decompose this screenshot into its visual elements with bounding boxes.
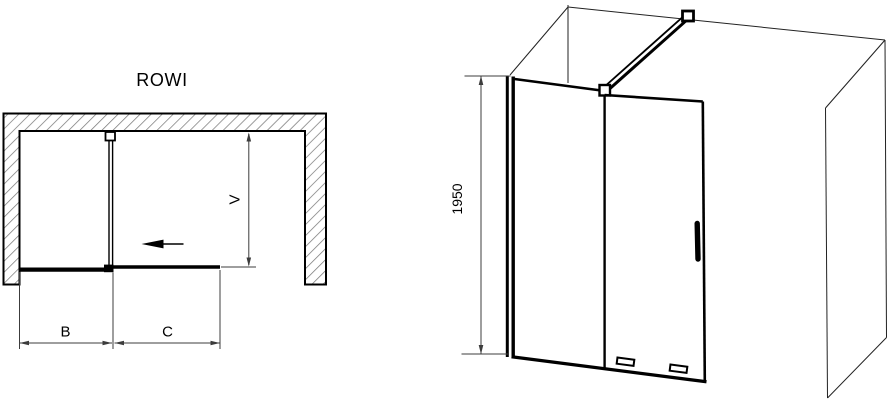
panel-junction-plan (104, 265, 114, 273)
door-top-edge (605, 95, 703, 102)
slide-direction-arrow-icon (142, 240, 184, 249)
bottom-guide-left (617, 358, 635, 366)
door-handle (697, 224, 698, 260)
room-outline (510, 5, 887, 398)
plan-view: ROWI B (4, 70, 327, 349)
support-bar-core (608, 18, 686, 87)
door-right-edge (703, 102, 705, 382)
wall-bracket-plan (106, 132, 116, 141)
right-wall-bottom-edge (828, 338, 887, 399)
wall-profile (507, 76, 513, 358)
bottom-guide-right (670, 365, 688, 373)
right-wall-front-edge (826, 108, 828, 398)
room-back-wall-top-edge (568, 7, 885, 40)
dimension-entry-depth: V (221, 133, 256, 268)
room-left-wall-top-edge (510, 7, 568, 75)
right-wall-top-edge (826, 40, 886, 108)
dimension-label-B: B (60, 324, 70, 341)
dimension-label-height: 1950 (449, 183, 465, 214)
arrow-head (142, 240, 164, 249)
fixed-panel-top-edge (515, 79, 606, 91)
sliding-door (605, 95, 705, 381)
dimension-height: 1950 (449, 76, 511, 354)
dimension-fixed-width: B (20, 272, 114, 349)
support-bar-plan (106, 132, 116, 270)
dimension-label-C: C (162, 324, 173, 341)
walls-hatched-plan (4, 114, 327, 285)
room-back-right-corner (885, 40, 887, 338)
bottom-rail (512, 357, 707, 382)
dimension-label-V: V (227, 194, 244, 204)
perspective-view: 1950 (449, 5, 887, 398)
fixed-panel (515, 79, 606, 369)
support-bar (600, 11, 694, 96)
product-title: ROWI (136, 70, 187, 90)
dimension-door-width: C (115, 270, 221, 349)
support-bar-wall-fitting (683, 11, 694, 21)
technical-drawing-canvas: ROWI B (0, 0, 889, 400)
